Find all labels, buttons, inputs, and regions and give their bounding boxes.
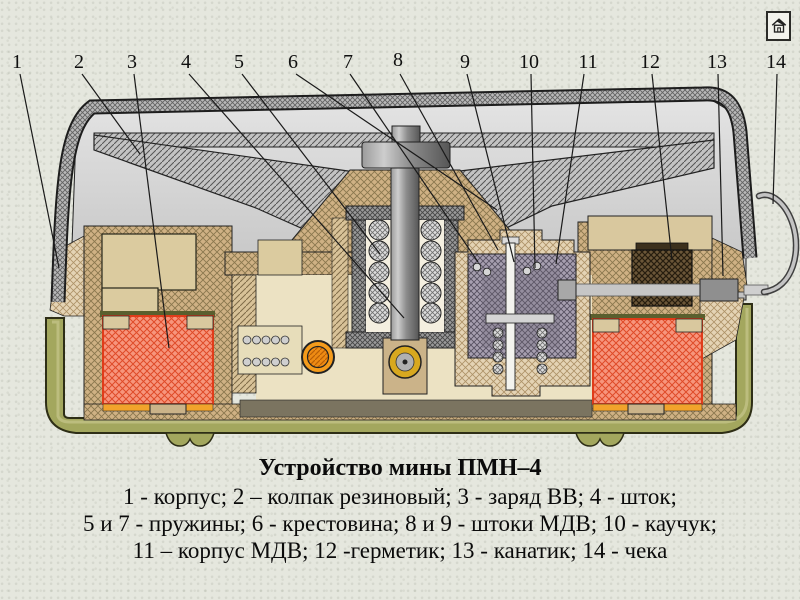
callout-number-2: 2 <box>74 51 84 73</box>
legend-line-2: 5 и 7 - пружины; 6 - крестовина; 8 и 9 -… <box>0 510 800 537</box>
slide-title: Устройство мины ПМН–4 <box>0 454 800 483</box>
mdv-plate <box>486 314 554 323</box>
callout-number-6: 6 <box>288 51 298 73</box>
callout-number-11: 11 <box>578 51 597 73</box>
leader-line-14 <box>773 74 777 204</box>
home-button[interactable] <box>766 11 791 41</box>
callout-number-14: 14 <box>766 51 786 73</box>
mdv-mechanism <box>455 230 590 396</box>
callout-number-5: 5 <box>234 51 244 73</box>
case-foot-left <box>166 433 214 446</box>
explosive-charge-right <box>590 314 705 414</box>
callout-numbers: 1 2 3 4 5 6 7 8 9 10 11 12 13 14 <box>12 49 786 73</box>
leader-line-1 <box>20 74 59 268</box>
explosive-charge-left <box>100 311 215 414</box>
callout-number-4: 4 <box>181 51 191 73</box>
callout-number-1: 1 <box>12 51 22 73</box>
striker-rod-cap <box>362 142 450 168</box>
home-icon <box>770 16 788 36</box>
legend-line-3: 11 – корпус МДВ; 12 -герметик; 13 - кана… <box>0 537 800 564</box>
cable <box>560 284 716 296</box>
callout-number-8: 8 <box>393 49 403 71</box>
callout-number-3: 3 <box>127 51 137 73</box>
case-foot-right <box>576 433 624 446</box>
detonator <box>302 341 334 373</box>
striker-rod <box>391 168 419 340</box>
mine-cross-section-diagram: 1 2 3 4 5 6 7 8 9 10 11 12 13 14 <box>0 0 800 455</box>
slide: 1 2 3 4 5 6 7 8 9 10 11 12 13 14 Устройс… <box>0 0 800 600</box>
safety-pin-wire <box>759 195 796 292</box>
caption-block: Устройство мины ПМН–4 1 - корпус; 2 – ко… <box>0 454 800 564</box>
primer-capsule <box>389 346 421 378</box>
striker-rod-top <box>392 126 420 142</box>
callout-number-9: 9 <box>460 51 470 73</box>
legend-line-1: 1 - корпус; 2 – колпак резиновый; 3 - за… <box>0 483 800 510</box>
callout-number-12: 12 <box>640 51 660 73</box>
callout-number-13: 13 <box>707 51 727 73</box>
callout-number-7: 7 <box>343 51 353 73</box>
cable-fitting <box>700 279 738 301</box>
spring-row-box <box>238 326 302 374</box>
callout-number-10: 10 <box>519 51 539 73</box>
